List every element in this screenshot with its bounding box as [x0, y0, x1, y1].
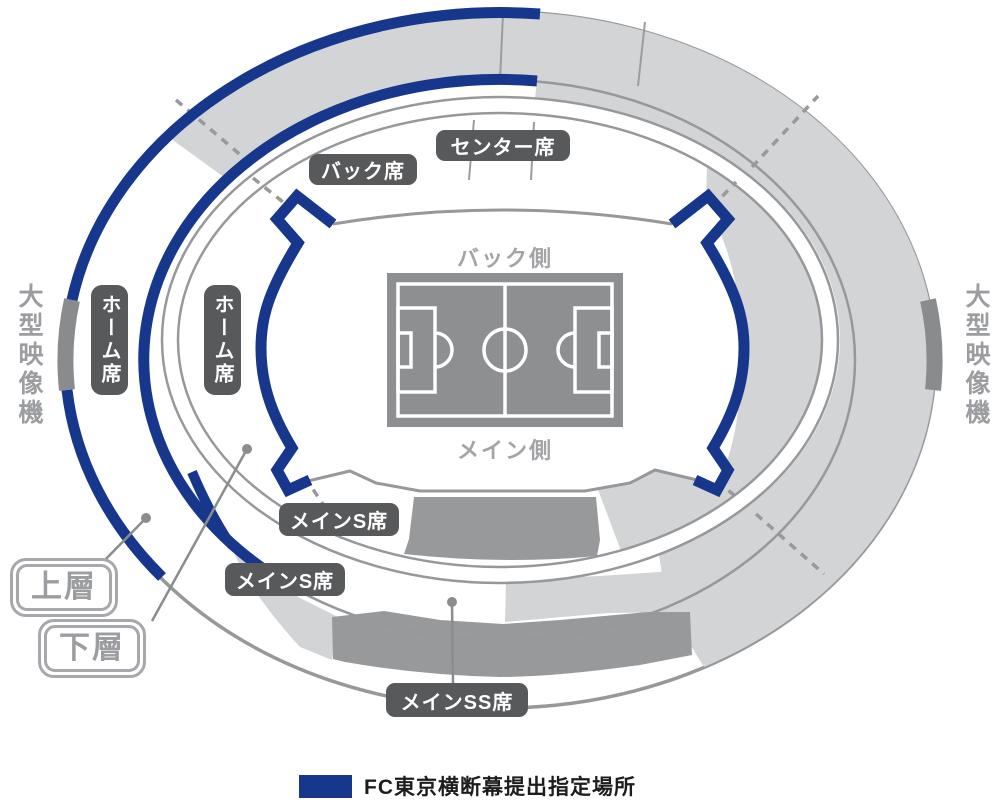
- main-s-lower-label: メインS席: [225, 563, 345, 596]
- home-stand-lower-label-text: ホーム席: [208, 294, 237, 386]
- main-lower-stand-structure: [404, 497, 600, 560]
- legend-label: FC東京横断幕提出指定場所: [364, 771, 636, 801]
- video-screen-left-block: [65, 300, 72, 390]
- home-stand-upper-label-text: ホーム席: [95, 294, 124, 386]
- center-stand-label: センター席: [436, 130, 570, 161]
- main-s-upper-label: メインS席: [279, 503, 399, 536]
- main-s-lower-label-text: メインS席: [236, 565, 334, 594]
- back-stand-label-text: バック席: [321, 155, 405, 184]
- main-s-upper-label-text: メインS席: [290, 505, 388, 534]
- pitch-main-side-label: メイン側: [435, 433, 575, 465]
- home-stand-upper-label: ホーム席: [91, 285, 128, 395]
- main-ss-label: メインSS席: [386, 683, 528, 717]
- main-ss-label-text: メインSS席: [401, 686, 514, 715]
- legend: FC東京横断幕提出指定場所: [299, 771, 636, 801]
- video-screen-left-label: 大型映像機: [11, 283, 47, 428]
- upper-tier-callout-text: 上層: [16, 564, 112, 611]
- center-stand-label-text: センター席: [451, 131, 556, 160]
- legend-color-swatch: [299, 775, 352, 798]
- lower-tier-callout-text: 下層: [44, 625, 140, 672]
- lower-tier-callout: 下層: [38, 619, 146, 678]
- pitch-back-side-label: バック側: [435, 241, 575, 273]
- video-screen-right-block: [928, 300, 935, 390]
- soccer-pitch: [387, 273, 623, 427]
- upper-tier-callout: 上層: [10, 558, 118, 617]
- back-stand-label: バック席: [309, 154, 417, 185]
- video-screen-right-label: 大型映像機: [958, 283, 994, 428]
- stadium-seating-map: センター席 バック席 ホーム席 ホーム席 メインS席 メインS席 メインSS席 …: [0, 0, 1000, 811]
- home-stand-lower-label: ホーム席: [204, 285, 241, 395]
